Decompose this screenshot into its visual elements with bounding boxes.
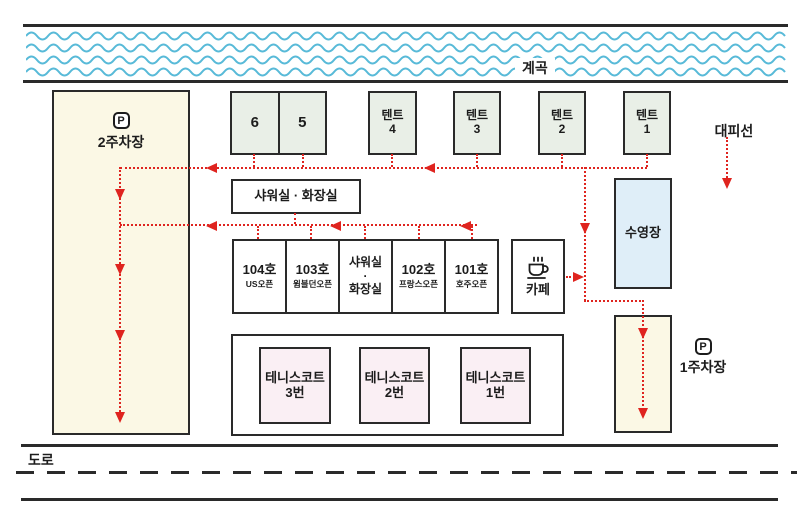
tennis-court-2: 테니스코트 2번 xyxy=(359,347,430,424)
site-6-5: 6 5 xyxy=(230,91,327,155)
tent-1: 텐트 1 xyxy=(623,91,671,155)
connector-tent-4 xyxy=(391,154,393,167)
stream-label: 계곡 xyxy=(515,58,555,78)
room-101: 101호 호주오픈 xyxy=(444,241,497,312)
campsite-map: 계곡 P 2주차장 6 5 텐트 4 텐트 3 텐트 2 텐트 1 대피선 샤워… xyxy=(0,0,800,518)
connector-room-shower xyxy=(364,226,366,239)
room-103-title: 103호 xyxy=(296,263,330,278)
parking-lot-1-caption: P 1주차장 xyxy=(672,338,734,375)
connector-site-6 xyxy=(253,154,255,167)
connector-tent-2 xyxy=(561,154,563,167)
connector-shower-block xyxy=(294,213,296,224)
arrow-down-icon xyxy=(115,264,125,275)
route-line-lower xyxy=(120,224,477,226)
room-102-title: 102호 xyxy=(402,263,436,278)
room-shower-l1: 샤워실 xyxy=(349,256,382,270)
connector-tent-3 xyxy=(476,154,478,167)
arrow-left-icon xyxy=(206,163,217,173)
room-104-sub: US오픈 xyxy=(246,278,273,290)
tent-1-number: 1 xyxy=(644,123,651,137)
arrow-right-icon xyxy=(573,272,584,282)
route-line-upper xyxy=(120,167,647,169)
connector-room-101 xyxy=(471,226,473,239)
room-101-sub: 호주오픈 xyxy=(456,278,487,290)
tent-2-label: 텐트 xyxy=(551,109,573,123)
evacuation-route-label: 대피선 xyxy=(705,121,763,141)
tent-1-label: 텐트 xyxy=(636,109,658,123)
tent-4: 텐트 4 xyxy=(368,91,417,155)
room-103-sub: 윔블던오픈 xyxy=(293,278,332,290)
tennis-court-3-number: 3번 xyxy=(285,386,304,401)
room-102: 102호 프랑스오픈 xyxy=(391,241,444,312)
tent-3: 텐트 3 xyxy=(453,91,501,155)
swimming-pool: 수영장 xyxy=(614,178,672,289)
arrow-left-icon xyxy=(460,221,471,231)
room-104-title: 104호 xyxy=(243,263,277,278)
room-104: 104호 US오픈 xyxy=(234,241,285,312)
stream-bottom-line xyxy=(23,80,788,83)
parking-icon: P xyxy=(113,112,130,129)
arrow-down-icon xyxy=(580,223,590,234)
road-center-line xyxy=(16,471,797,474)
site-5-label: 5 xyxy=(278,93,326,153)
arrow-down-icon xyxy=(115,189,125,200)
connector-room-104 xyxy=(257,226,259,239)
route-line-to-parking1 xyxy=(584,300,644,302)
tennis-court-2-label: 테니스코트 xyxy=(365,371,425,386)
tent-2: 텐트 2 xyxy=(538,91,586,155)
parking-lot-2: P 2주차장 xyxy=(52,90,190,435)
cafe: 카페 xyxy=(511,239,565,314)
rooms-row: 104호 US오픈 103호 윔블던오픈 샤워실 · 화장실 102호 프랑스오… xyxy=(232,239,499,314)
parking-lot-2-label: 2주차장 xyxy=(98,134,144,150)
parking-lot-1-label: 1주차장 xyxy=(680,359,726,375)
evacuation-route-line xyxy=(726,137,728,178)
tennis-court-1-number: 1번 xyxy=(486,386,505,401)
parking-icon: P xyxy=(695,338,712,355)
tennis-court-1-label: 테니스코트 xyxy=(466,371,526,386)
room-shower-toilet: 샤워실 · 화장실 xyxy=(338,241,391,312)
swimming-pool-label: 수영장 xyxy=(625,226,661,241)
shower-toilet-block: 샤워실 · 화장실 xyxy=(231,179,361,214)
tent-4-label: 텐트 xyxy=(381,109,403,123)
connector-site-5 xyxy=(302,154,304,167)
arrow-left-icon xyxy=(206,221,217,231)
arrow-down-icon xyxy=(638,328,648,339)
room-103: 103호 윔블던오픈 xyxy=(285,241,338,312)
arrow-down-icon xyxy=(115,412,125,423)
tennis-court-2-number: 2번 xyxy=(385,386,404,401)
stream-waves xyxy=(26,29,788,77)
room-101-title: 101호 xyxy=(455,263,489,278)
arrow-down-icon xyxy=(722,178,732,189)
arrow-left-icon xyxy=(424,163,435,173)
tent-3-number: 3 xyxy=(474,123,481,137)
connector-tent-1 xyxy=(646,154,648,167)
tent-4-number: 4 xyxy=(389,123,396,137)
cafe-label: 카페 xyxy=(526,283,550,298)
route-line-parking2 xyxy=(119,167,121,420)
room-102-sub: 프랑스오픈 xyxy=(399,278,438,290)
shower-toilet-label: 샤워실 · 화장실 xyxy=(254,189,337,204)
tennis-court-3-label: 테니스코트 xyxy=(265,371,325,386)
connector-room-103 xyxy=(310,226,312,239)
road-top-line xyxy=(21,444,778,447)
route-line-parking1 xyxy=(642,300,644,410)
tennis-court-3: 테니스코트 3번 xyxy=(259,347,331,424)
coffee-cup-icon xyxy=(525,256,551,280)
tennis-court-1: 테니스코트 1번 xyxy=(460,347,531,424)
arrow-down-icon xyxy=(638,408,648,419)
tent-3-label: 텐트 xyxy=(466,109,488,123)
tent-2-number: 2 xyxy=(559,123,566,137)
route-line-pool-side xyxy=(584,167,586,301)
connector-room-102 xyxy=(418,226,420,239)
road-bottom-line xyxy=(21,498,778,501)
stream-top-line xyxy=(23,24,788,27)
road-label: 도로 xyxy=(28,450,54,470)
arrow-down-icon xyxy=(115,330,125,341)
room-shower-l3: 화장실 xyxy=(349,283,382,297)
arrow-left-icon xyxy=(330,221,341,231)
site-6-label: 6 xyxy=(232,93,278,153)
